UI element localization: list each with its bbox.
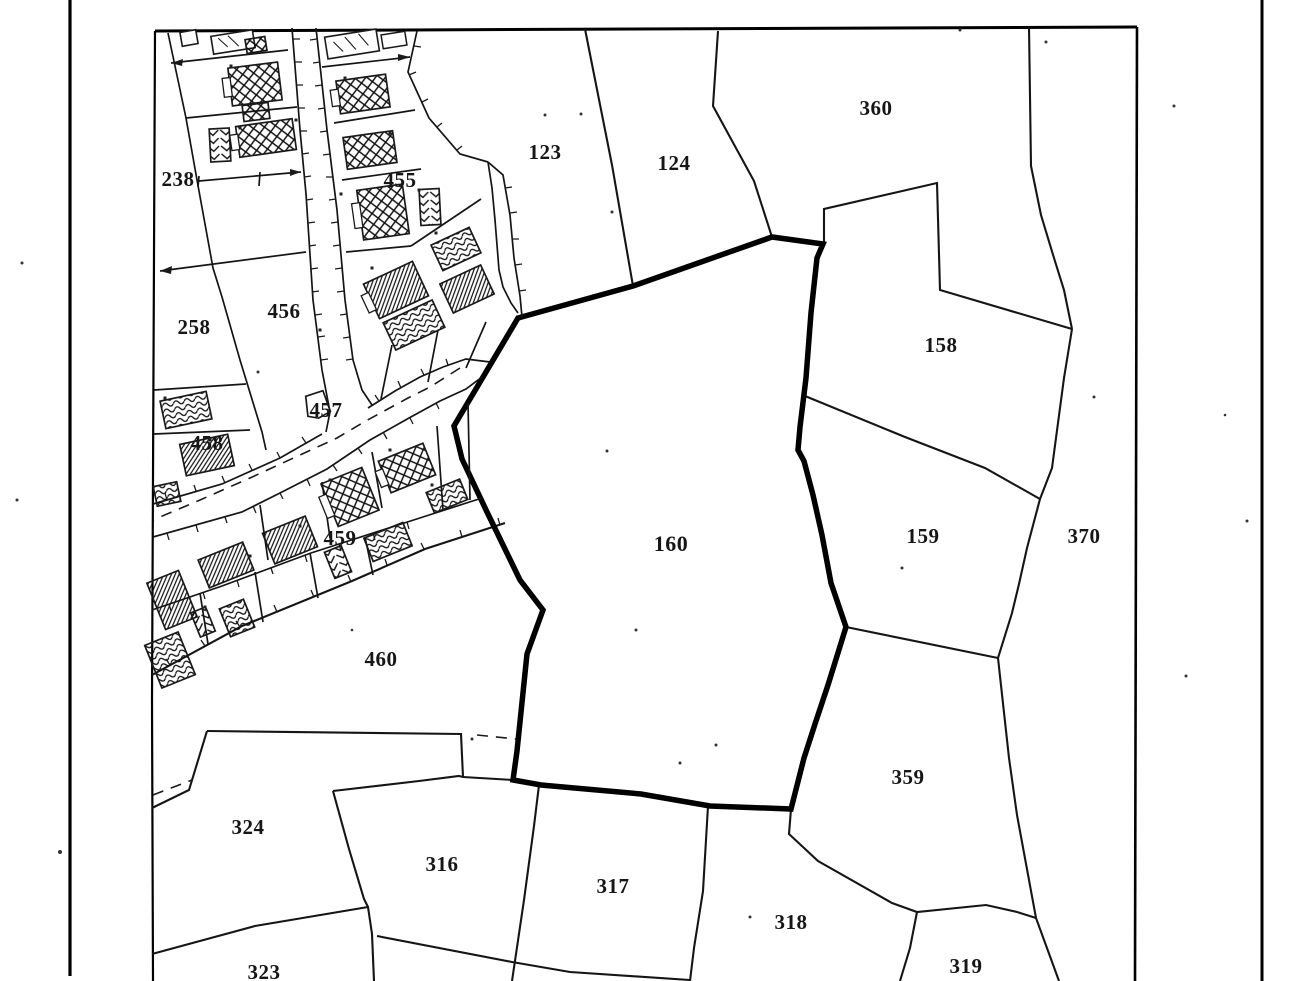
svg-text:360: 360 [860,96,893,120]
svg-text:370: 370 [1068,524,1101,548]
svg-text:458: 458 [191,431,224,455]
svg-text:158: 158 [925,333,958,357]
svg-text:456: 456 [268,299,301,323]
svg-text:359: 359 [892,765,925,789]
svg-text:460: 460 [365,647,398,671]
svg-text:238: 238 [162,167,195,191]
svg-text:318: 318 [775,910,808,934]
svg-text:319: 319 [950,954,983,978]
svg-text:323: 323 [248,960,281,981]
svg-text:324: 324 [232,815,265,839]
svg-text:258: 258 [178,315,211,339]
svg-text:455: 455 [384,168,417,192]
svg-text:457: 457 [310,398,343,422]
svg-text:160: 160 [654,531,689,556]
svg-text:159: 159 [907,524,940,548]
svg-text:316: 316 [426,852,459,876]
svg-text:459: 459 [324,526,357,550]
svg-text:123: 123 [529,140,562,164]
svg-text:317: 317 [597,874,630,898]
svg-text:124: 124 [658,151,691,175]
